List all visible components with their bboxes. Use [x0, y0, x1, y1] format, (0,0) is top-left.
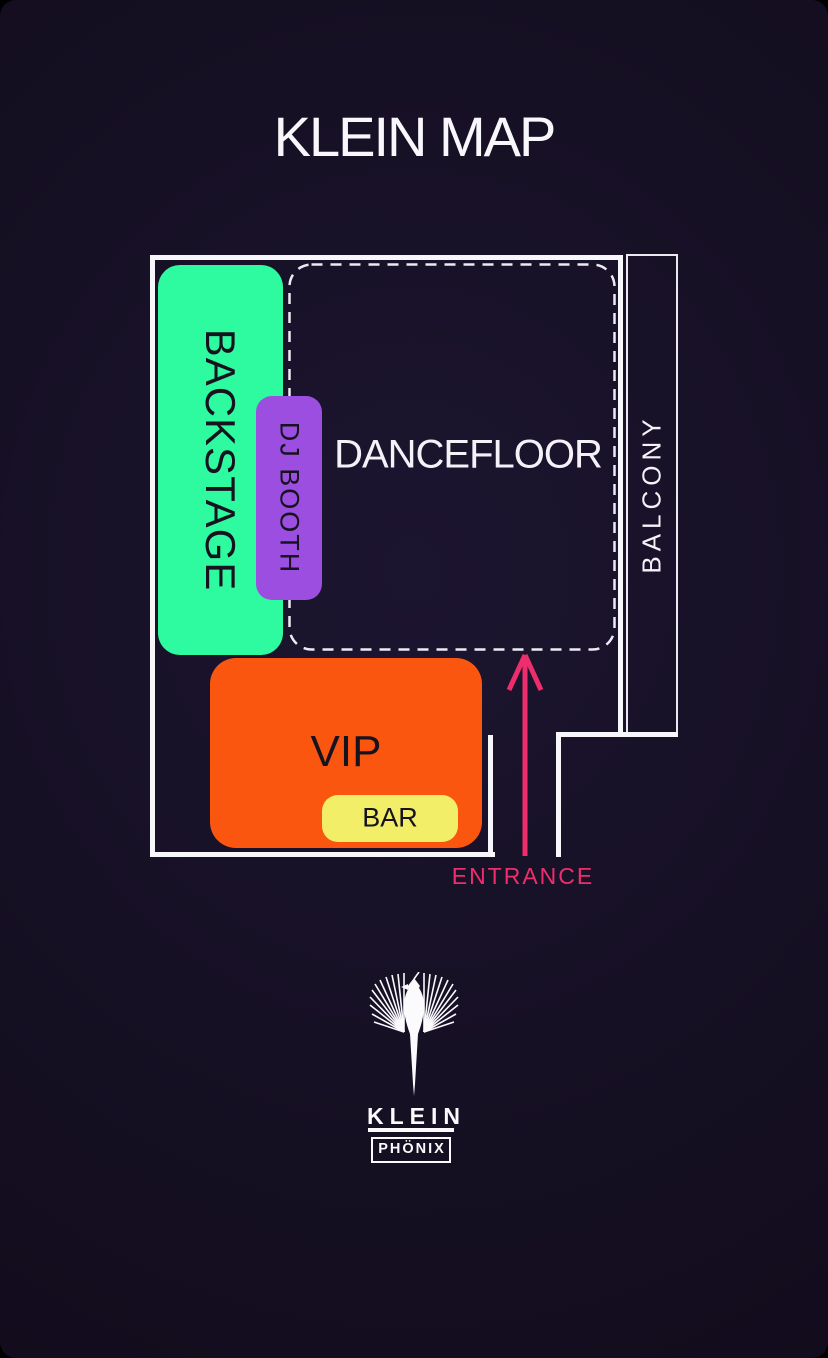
wall-entrance-left	[488, 735, 493, 857]
phoenix-logo-icon	[368, 972, 460, 1104]
wall-left	[150, 255, 155, 857]
backstage-label: BACKSTAGE	[196, 329, 244, 592]
vip-label: VIP	[311, 727, 382, 777]
logo-subtitle-box: PHÖNIX	[371, 1137, 451, 1163]
dancefloor-label: DANCEFLOOR	[334, 433, 602, 478]
entrance-arrow-icon	[501, 650, 549, 858]
phoenix-right-wing	[424, 973, 458, 1032]
logo-subtitle: PHÖNIX	[373, 1139, 449, 1160]
wall-bottom	[150, 852, 495, 857]
dj-booth-label: DJ BOOTH	[274, 422, 305, 575]
venue-map-page: KLEIN MAP BALCONY DANCEFLOOR BACKSTAGE D…	[0, 0, 828, 1358]
wall-entrance-right	[556, 732, 561, 857]
phoenix-left-wing	[370, 973, 404, 1032]
bar-label: BAR	[362, 803, 418, 834]
wall-top	[150, 255, 623, 260]
balcony-label: BALCONY	[637, 414, 668, 573]
logo-wordmark: KLEIN	[354, 1103, 474, 1130]
entrance-label: ENTRANCE	[423, 863, 623, 890]
page-title: KLEIN MAP	[0, 104, 828, 169]
wall-right	[618, 255, 623, 737]
logo-underline	[368, 1128, 454, 1132]
